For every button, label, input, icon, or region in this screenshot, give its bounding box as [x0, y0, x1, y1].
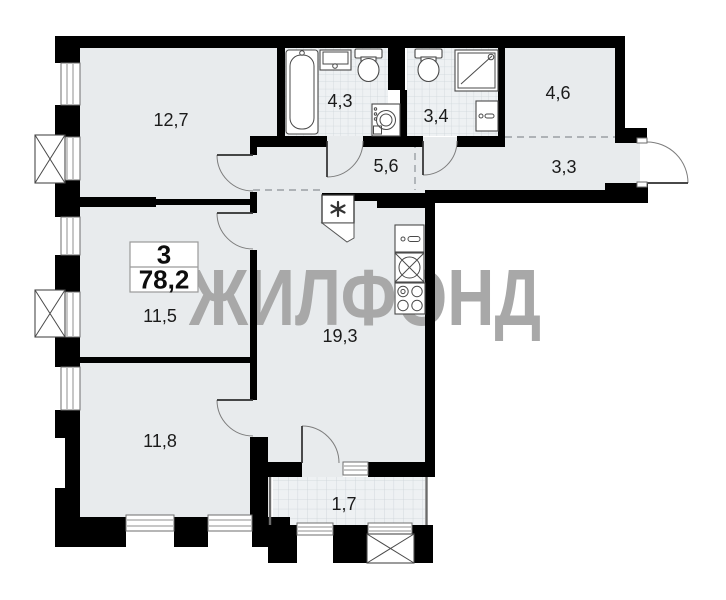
- kitchen-sink-icon: [395, 253, 424, 282]
- room-area-label-toilet: 3,4: [423, 106, 448, 126]
- room-area-label-living: 12,7: [153, 110, 188, 130]
- floor-plan-page: ЖИЛФОНД: [0, 0, 726, 600]
- ac-unit-icon: [367, 534, 414, 563]
- window-icon: [368, 523, 412, 535]
- room-area-label-entry: 3,3: [551, 157, 576, 177]
- ac-unit-icon: [35, 135, 65, 183]
- vanity-icon: [476, 101, 498, 131]
- room-area-label-kitchen: 19,3: [322, 326, 357, 346]
- room-area-label-bedroom: 11,5: [143, 306, 177, 326]
- room-area-label-wardrobe: 4,6: [545, 83, 570, 103]
- sink-icon: [320, 50, 351, 70]
- door-opening-floor: [250, 213, 257, 249]
- summary-box: 3 78,2: [130, 240, 198, 295]
- ac-unit-icon: [35, 290, 65, 337]
- floor-plan-drawing: ЖИЛФОНД: [0, 0, 726, 600]
- door-opening-floor: [250, 155, 257, 191]
- door-opening-floor: [302, 462, 343, 477]
- room-area-label-balcony: 1,7: [331, 494, 356, 514]
- room-area-label-bathroom: 4,3: [327, 91, 352, 111]
- agency-watermark: ЖИЛФОНД: [188, 253, 541, 342]
- total-area: 78,2: [139, 265, 190, 295]
- shower-icon: [455, 50, 498, 91]
- window-icon: [297, 523, 333, 535]
- entrance-door-icon: [637, 138, 688, 187]
- stove-icon: [395, 283, 425, 314]
- door-opening-floor: [250, 400, 257, 436]
- window-icon: [61, 367, 80, 410]
- window-icon: [126, 515, 174, 531]
- room-area-label-hallway: 5,6: [373, 156, 398, 176]
- window-icon: [61, 63, 80, 105]
- window-icon: [61, 217, 80, 255]
- window-icon: [208, 515, 252, 531]
- room-area-label-bedroom2: 11,8: [143, 431, 177, 451]
- window-icon: [343, 462, 368, 475]
- washing-machine-icon: [372, 104, 400, 136]
- bathtub-icon: [286, 50, 318, 134]
- kitchen-cabinet-icon: [395, 225, 424, 252]
